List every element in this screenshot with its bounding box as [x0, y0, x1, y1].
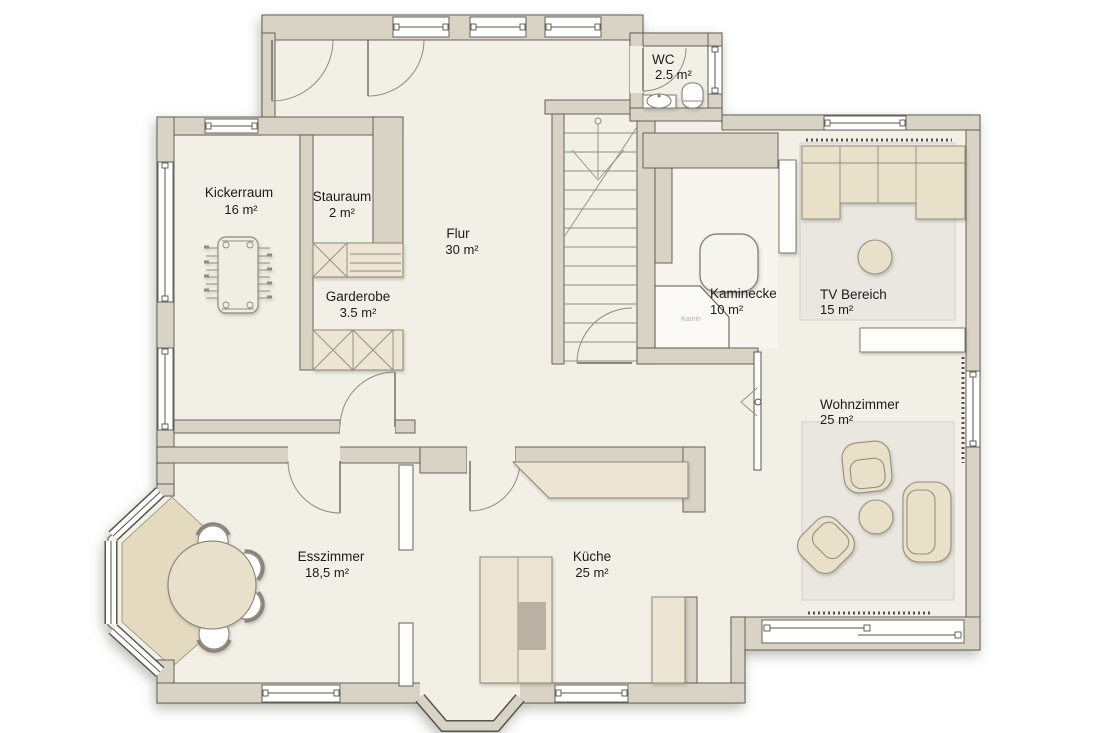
kitchen-counter-right: [652, 597, 685, 683]
wardrobe-lower: [313, 330, 403, 370]
tv-lowboard: [779, 160, 796, 253]
wall-kickerraum-bottom: [174, 420, 340, 433]
label-garderobe-area: 3.5 m²: [340, 305, 378, 320]
loveseat: [903, 482, 951, 562]
dining-table: [168, 541, 256, 629]
label-kueche-area: 25 m²: [575, 565, 609, 580]
label-esszimmer-area: 18,5 m²: [305, 565, 350, 580]
opening-kickerraum-door: [340, 418, 395, 434]
wc-toilet: [682, 83, 703, 108]
label-stauraum-area: 2 m²: [329, 205, 356, 220]
wall-divider-lower: [399, 623, 413, 686]
label-kaminecke: Kaminecke: [710, 286, 777, 301]
opening-kueche-door: [467, 446, 515, 474]
label-kaminecke-area: 10 m²: [710, 302, 744, 317]
opening-wc-door: [630, 46, 643, 93]
label-wc: WC: [652, 52, 675, 67]
floor-plan: Kickerraum 16 m² Stauraum 2 m² Flur 30 m…: [0, 0, 1100, 733]
wohnzimmer-table: [859, 500, 893, 534]
label-wohnzimmer-area: 25 m²: [820, 412, 854, 427]
kaminecke-table: [700, 234, 758, 292]
label-kueche: Küche: [573, 549, 611, 564]
tv-pouf: [858, 240, 892, 274]
sliding-door-panel: [754, 352, 761, 470]
label-kickerraum-area: 16 m²: [224, 202, 258, 217]
wall-kueche-top: [515, 447, 690, 462]
label-wohnzimmer: Wohnzimmer: [820, 397, 900, 412]
wardrobe-upper: [313, 243, 403, 277]
foosball-body: [218, 237, 258, 313]
wall-kueche-door-stub: [420, 447, 467, 473]
wall-garderobe-door-stub: [395, 420, 415, 433]
wall-kickerraum-right: [300, 135, 313, 370]
opening-esszimmer-door: [288, 446, 340, 464]
wall-kaminecke-left-thick: [655, 168, 672, 263]
label-flur: Flur: [446, 226, 470, 241]
wall-wc-bottom: [630, 108, 722, 121]
label-wc-area: 2.5 m²: [655, 67, 693, 82]
window-wohnzimmer-sliding: [762, 620, 964, 643]
label-stauraum: Stauraum: [313, 189, 372, 204]
wall-kickerraum-top: [157, 117, 403, 135]
tv-sideboard: [860, 328, 965, 352]
sliding-door-handle: [755, 399, 761, 405]
label-tv-bereich-area: 15 m²: [820, 302, 854, 317]
label-garderobe: Garderobe: [326, 289, 391, 304]
wall-divider-upper: [399, 465, 413, 550]
wall-kaminecke-top: [643, 133, 778, 168]
wall-stair-left: [552, 112, 564, 364]
wall-kueche-island-side: [685, 597, 697, 683]
label-flur-area: 30 m²: [445, 242, 479, 257]
wall-kaminecke-bottom: [637, 348, 758, 364]
cooktop: [518, 602, 546, 650]
opening-kitchen-bay: [420, 682, 520, 704]
label-kickerraum: Kickerraum: [205, 185, 273, 200]
wall-stauraum-column: [373, 117, 403, 243]
label-kamin: Kamin: [681, 316, 701, 323]
wall-entry-left: [262, 33, 275, 117]
label-tv-bereich: TV Bereich: [820, 287, 887, 302]
armchair-1: [841, 440, 894, 495]
floor-plan-drawing: Kickerraum 16 m² Stauraum 2 m² Flur 30 m…: [0, 0, 1100, 733]
label-esszimmer: Esszimmer: [298, 549, 365, 564]
